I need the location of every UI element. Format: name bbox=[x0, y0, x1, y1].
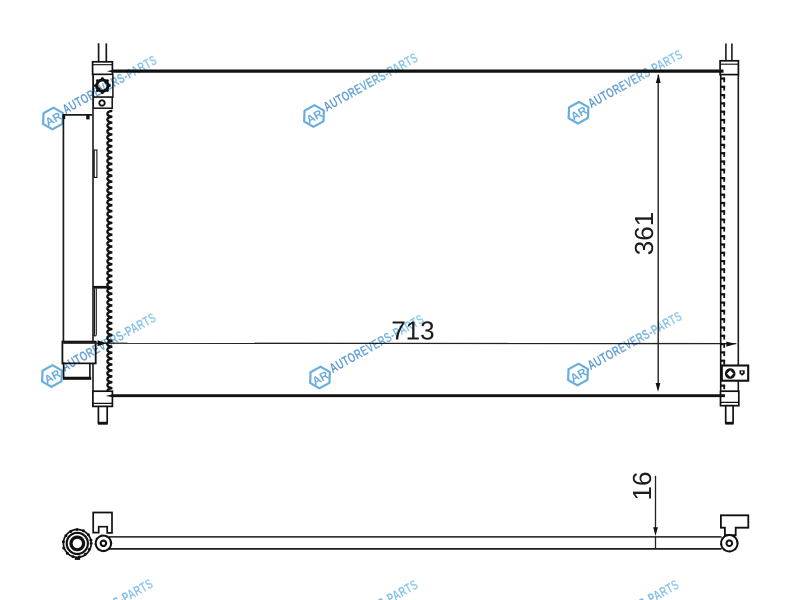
svg-text:16: 16 bbox=[627, 472, 657, 501]
svg-text:361: 361 bbox=[629, 212, 659, 255]
